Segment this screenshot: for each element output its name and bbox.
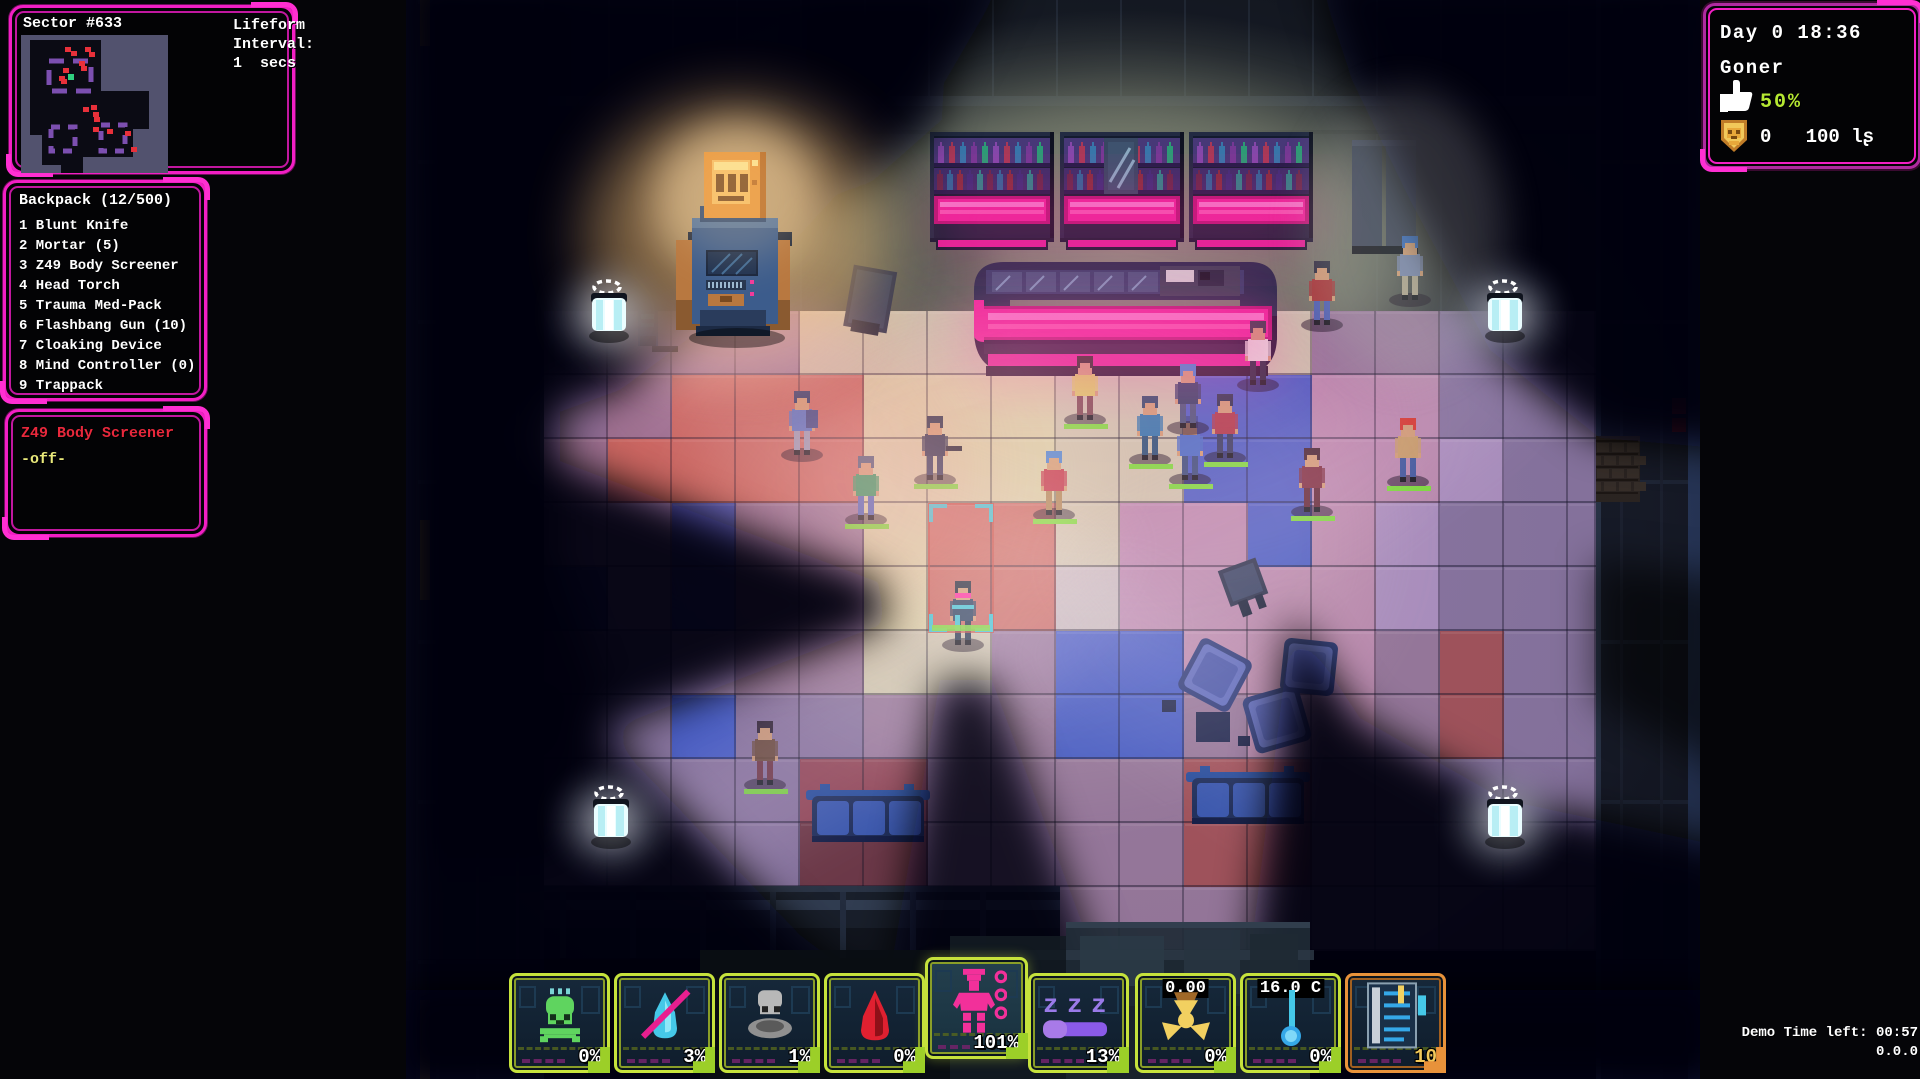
svg-text:z: z <box>1067 990 1083 1020</box>
svg-text:z: z <box>1091 990 1107 1020</box>
svg-text:z: z <box>1043 990 1059 1020</box>
